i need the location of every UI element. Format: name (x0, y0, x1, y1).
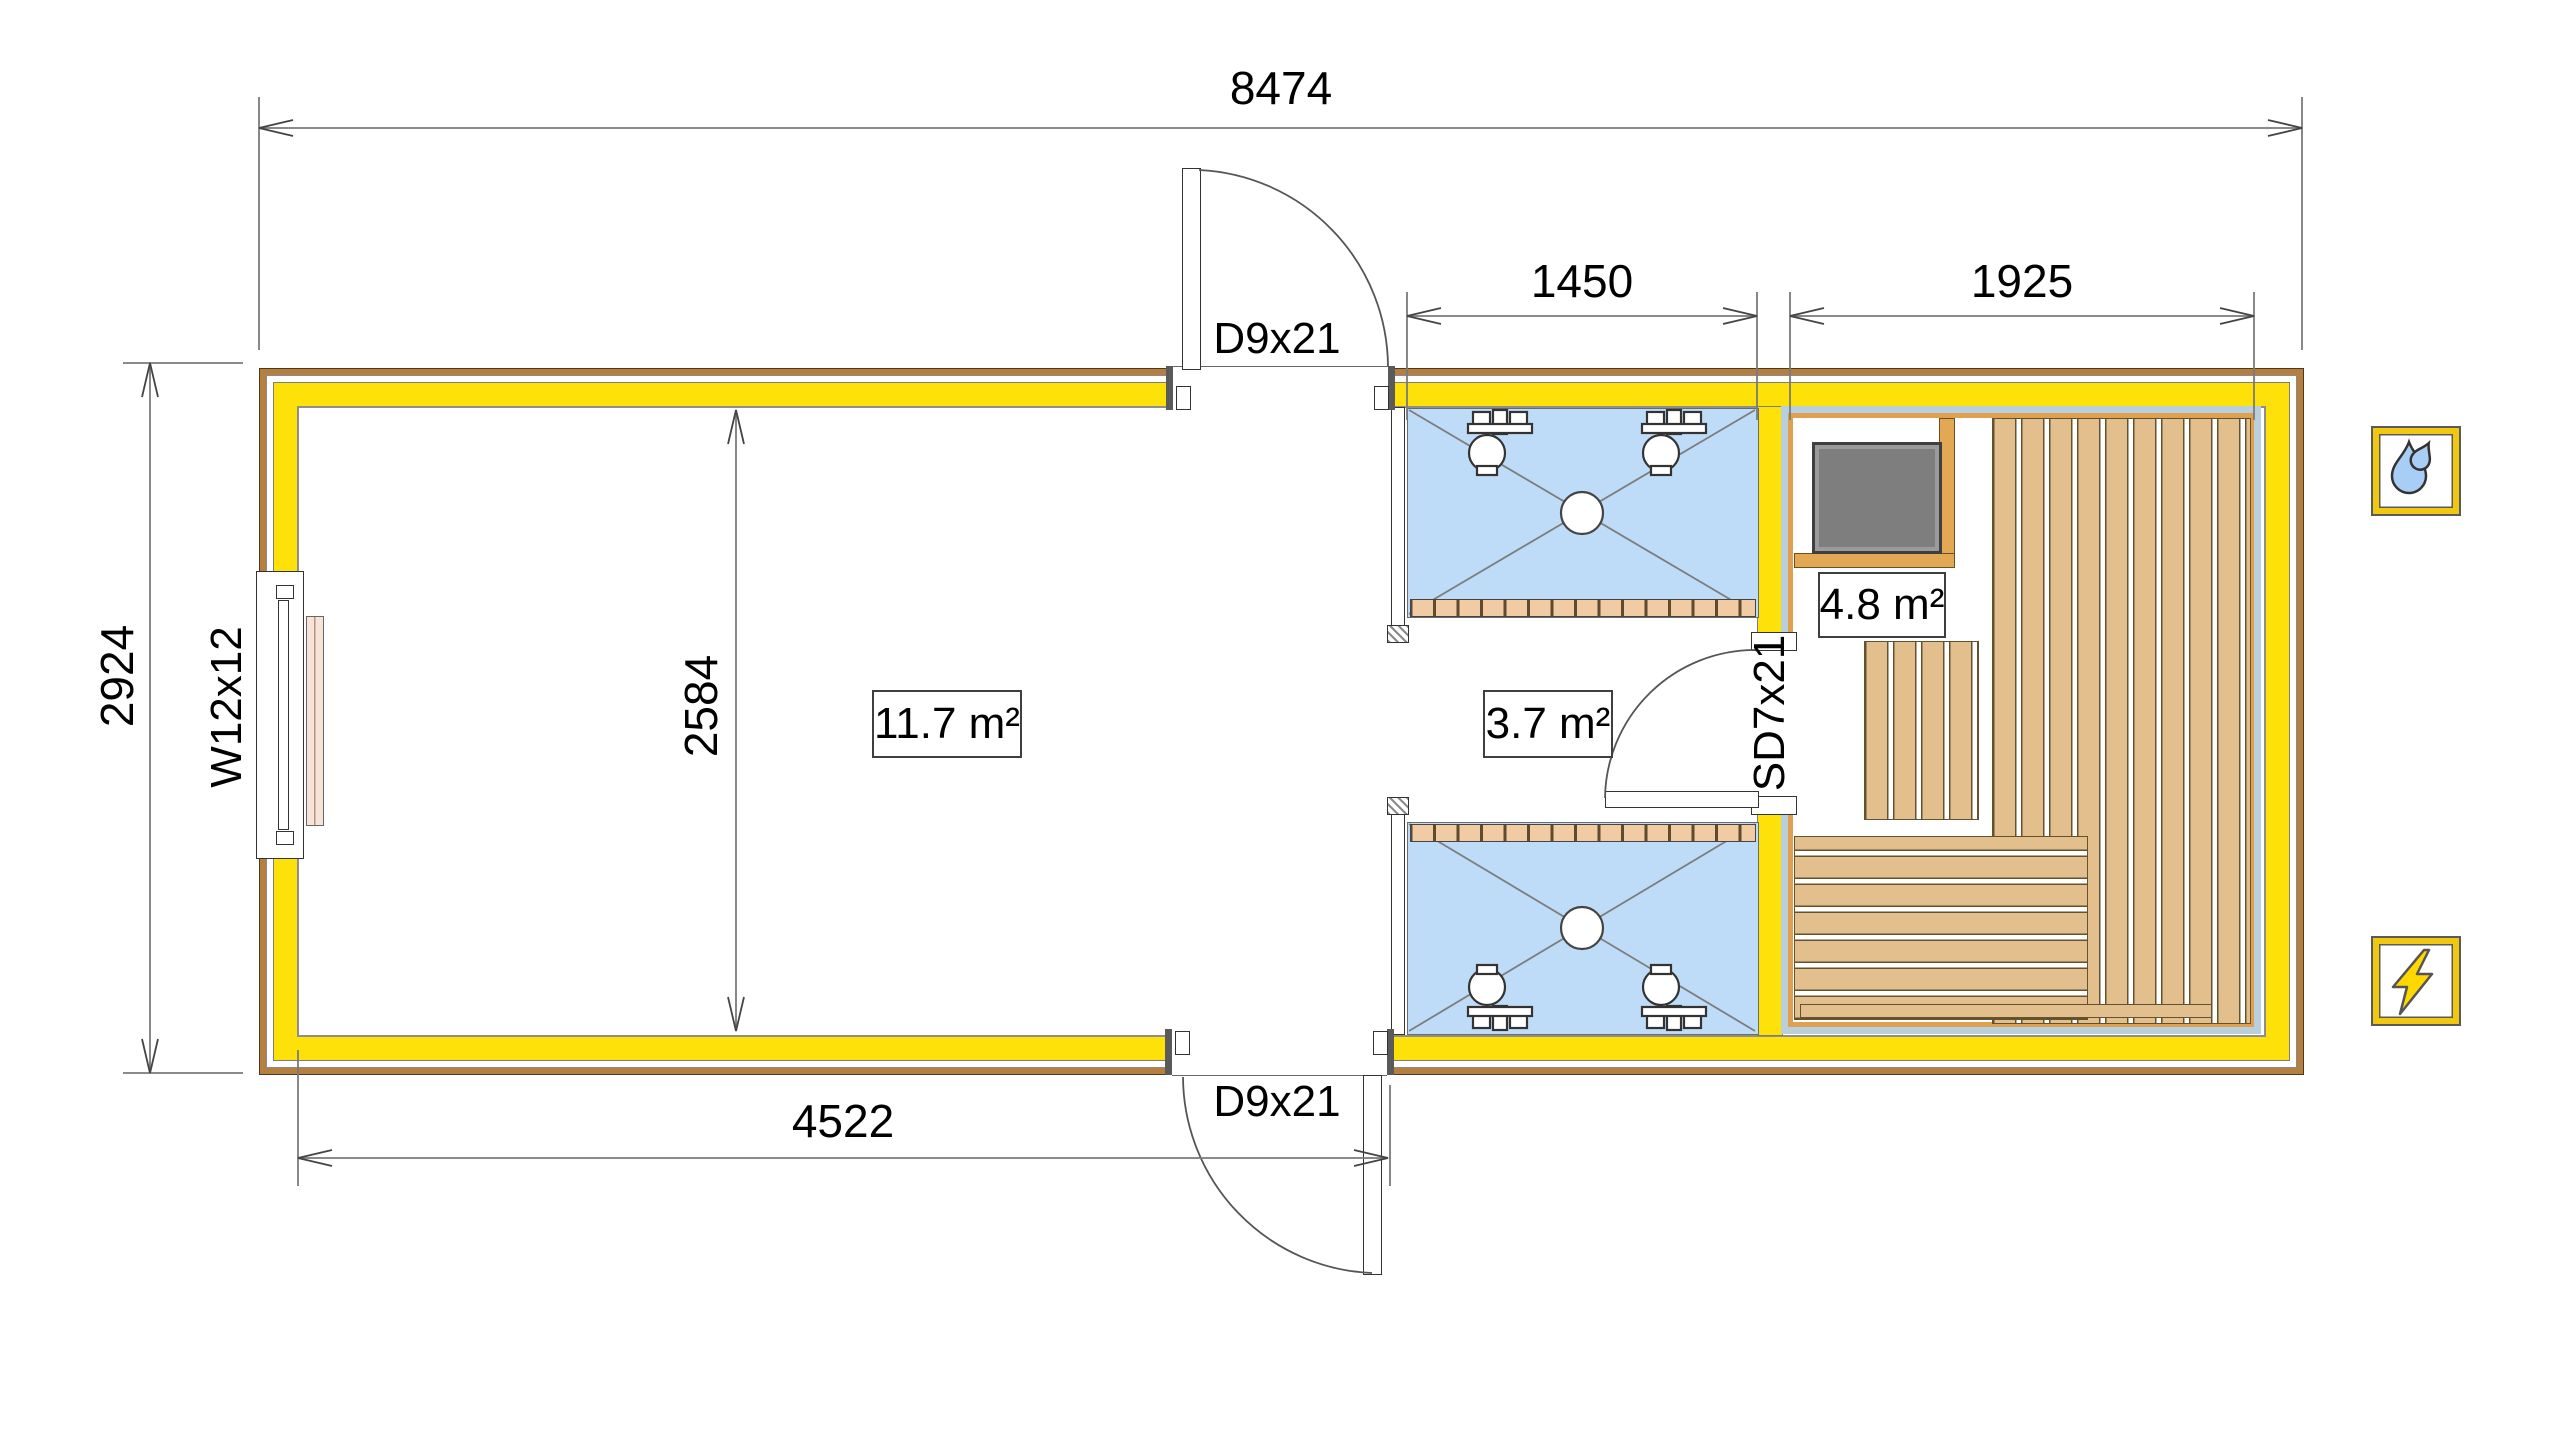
faucet-icon (1468, 965, 1532, 1030)
shower-top-drain (1561, 492, 1603, 534)
sauna-area-label: 4.8 m² (1818, 572, 1946, 638)
shower-top-duckboard (1410, 599, 1756, 617)
sauna-area-value: 4.8 m² (1820, 580, 1945, 630)
lightning-bolt-glyph (2379, 944, 2453, 1018)
dim-1925-lines (1790, 292, 2254, 420)
dim-shower-width: 1450 (1531, 254, 1633, 308)
dim-2584-lines (728, 410, 744, 1031)
plan-linework (0, 0, 2560, 1437)
faucet-icon (1642, 410, 1706, 475)
faucet-icon (1642, 965, 1706, 1030)
shower-bottom-drain (1561, 907, 1603, 949)
main-room-area-value: 11.7 m² (874, 699, 1020, 749)
dim-8474-lines (259, 97, 2302, 350)
sauna-door-swing-arc (1605, 650, 1755, 798)
door-bottom-label: D9x21 (1213, 1077, 1340, 1127)
water-icon (2373, 428, 2459, 514)
dim-main-room-width: 4522 (792, 1094, 894, 1148)
shower-room-area-label: 3.7 m² (1483, 690, 1613, 758)
dim-sauna-width: 1925 (1971, 254, 2073, 308)
water-drops-glyph (2379, 434, 2453, 508)
door-top-label: D9x21 (1213, 314, 1340, 364)
faucet-icon (1468, 410, 1532, 475)
electric-icon (2373, 938, 2459, 1024)
dim-interior-depth: 2584 (674, 655, 728, 757)
main-room-area-label: 11.7 m² (872, 690, 1022, 758)
shower-room-area-value: 3.7 m² (1486, 699, 1611, 749)
dim-overall-depth: 2924 (90, 625, 144, 727)
dim-1450-lines (1407, 292, 1757, 420)
floor-plan: 8474 2924 2584 4522 1450 1925 D9x21 D9x2… (0, 0, 2560, 1437)
sauna-door-label: SD7x21 (1745, 635, 1795, 792)
window-label: W12x12 (202, 626, 252, 787)
dim-overall-width: 8474 (1230, 61, 1332, 115)
shower-bottom-duckboard (1410, 824, 1756, 842)
